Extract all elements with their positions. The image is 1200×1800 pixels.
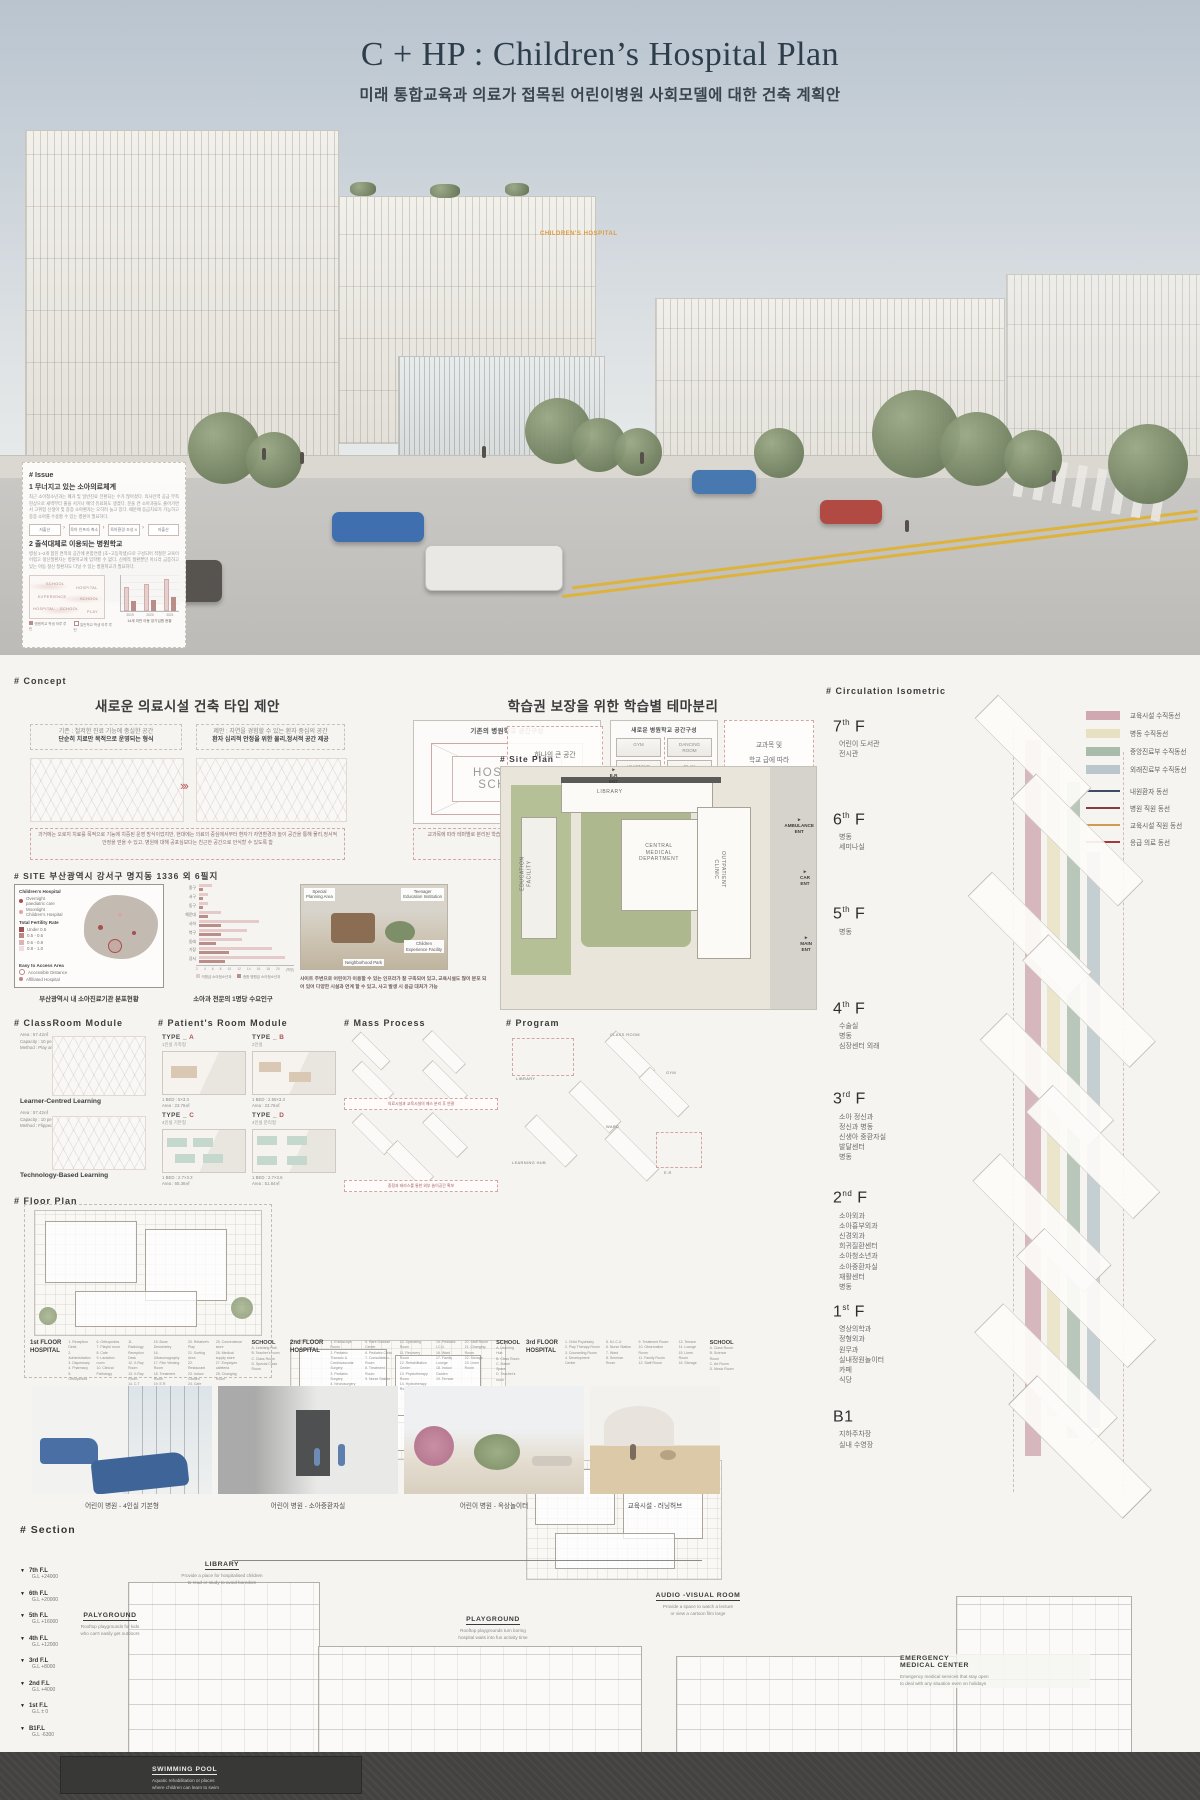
axis-tick: 8	[220, 967, 222, 972]
car-white-suv	[425, 545, 563, 591]
site-chart-panel: 중구서구동구해운대사하북구동래기장강서2468101214161820(백명) …	[172, 884, 294, 980]
site-caption: 사이트 주변으로 어린이가 이용할 수 있는 인프라가 잘 구축되어 있고, 교…	[300, 976, 490, 991]
callout-title: PLAYGROUND	[466, 1616, 520, 1625]
school-list: A. Learning Hub B. Class Room C. Maker S…	[496, 1346, 520, 1383]
callout-desc: Aquatic rehabilitation or places where c…	[152, 1778, 332, 1792]
type-drawing	[162, 1051, 246, 1095]
type-dims: 1 BED : 2.55×3.3 Area : 23.76㎡	[252, 1097, 336, 1109]
bar-category-label: 북구	[172, 930, 199, 936]
classroom-2-label: Technology-Based Learning	[20, 1172, 108, 1179]
callout-palyground: PALYGROUND Rooftop playgrounds for kids …	[30, 1604, 190, 1638]
callout-audio-visual: AUDIO -VISUAL ROOM Provide a space to wa…	[608, 1584, 788, 1618]
square-swatch	[19, 927, 24, 932]
photo-figure-1: 어린이 병원 - 4인실 기본형	[32, 1386, 212, 1510]
program-label: LIBRARY	[516, 1076, 535, 1081]
axis-tick: 18	[266, 967, 270, 972]
axis-tick: 2	[196, 967, 198, 972]
type-drawing	[162, 1129, 246, 1173]
axis-unit: (백명)	[286, 967, 294, 972]
plan-legend-col: 1. Endoscope Room 2. Pediatric Thoracic …	[330, 1340, 359, 1393]
plan-legend-col: 10. Operating Room 11. Recovery Room 12.…	[400, 1340, 430, 1393]
issue-chart-caption: 14세 미만 아동 장기입원 현황	[120, 619, 179, 624]
floor-number: 7th F	[833, 718, 951, 736]
long-stay-bar-chart: 201920202021	[120, 575, 179, 612]
flower-bush	[414, 1426, 454, 1466]
bar-category-label: 동구	[172, 903, 199, 909]
site-photo-label: Teenager Education Institution	[401, 888, 444, 901]
bar-category-label: 2020	[144, 613, 156, 617]
floorplan-1-drawing	[34, 1210, 262, 1336]
concept-old-isometric	[30, 758, 184, 822]
type-name: TYPE _ B	[252, 1034, 336, 1041]
bar-row: 사하	[172, 920, 294, 927]
er-entrance-label: E.R ENT	[609, 767, 618, 784]
bar-장기입원 아동	[124, 587, 129, 611]
floor-rooms: 어린이 도서관 전시관	[839, 740, 951, 760]
floor-number: 6th F	[833, 811, 951, 829]
callout-desc: Provide a place for hospitalised childre…	[132, 1573, 312, 1587]
issue-chart-figure: 201920202021 14세 미만 아동 장기입원 현황	[120, 575, 179, 633]
site-photo-label: Special Planning Area	[304, 888, 335, 901]
routine-diagram: SCHOOL HOSPITAL EXPERIENCE SCHOOL HOSPIT…	[29, 575, 105, 619]
mass-heading: # Mass Process	[344, 1018, 426, 1028]
bar-pair	[199, 902, 294, 909]
header: C + HP : Children’s Hospital Plan 미래 통합교…	[0, 36, 1200, 105]
legend-item: 의원급 소아청소년과	[196, 974, 231, 980]
type-name: TYPE _ A	[162, 1034, 246, 1041]
bar-pair	[199, 893, 294, 900]
patient-type-b: TYPE _ B 2인실 1 BED : 2.55×3.3 Area : 23.…	[252, 1034, 336, 1109]
photo-figure-3: 어린이 병원 - 옥상놀이터	[404, 1386, 584, 1510]
routine-word: EXPERIENCE	[38, 595, 66, 599]
bar-row: 서구	[172, 893, 294, 900]
legend-item: Accessible Distance	[19, 969, 67, 975]
floorplan-1-caption: 1st FLOOR HOSPITAL 1. Reception Desk 2. …	[30, 1340, 280, 1393]
plan-legend-col: 5. Rare Disease Center 6. Pediatric Clin…	[365, 1340, 394, 1393]
bar-종합 병원급 소아청소년과	[199, 924, 221, 927]
plan-landscape	[39, 1307, 57, 1325]
floor-entry: 6th F 병동 세미나실	[833, 811, 951, 854]
plan-school-legend: SCHOOL A. Learning Hub B. Class Room C. …	[496, 1340, 520, 1383]
plan-legend-cols: 1. Reception Desk 2. Administration 3. D…	[68, 1340, 244, 1393]
program-dashed-box	[512, 1038, 574, 1076]
floor-entry: 4th F 수술실 병동 심장센터 외래	[833, 1000, 951, 1053]
hospital-bed	[40, 1438, 98, 1464]
level-list: 7th F.L G.L +24000 6th F.L G.L +20000 5t…	[20, 1568, 58, 1748]
plan-legend-col: 15. Pediatric I.C.U 16. Ward 17. Family …	[436, 1340, 459, 1393]
callout-title: PALYGROUND	[83, 1612, 136, 1621]
concept-old-box: 기존 : 철저한 진료 기능에 충실한 공간 단순히 치료만 목적으로 운영되는…	[30, 724, 182, 750]
main-entrance-label: MAIN ENT	[800, 935, 812, 952]
floor-number: 5th F	[833, 905, 951, 923]
callout-title: SWIMMING POOL	[152, 1766, 217, 1775]
bar-종합 병원급 소아청소년과	[199, 897, 203, 900]
car-entrance-label: CAR ENT	[800, 869, 810, 886]
routine-word: SCHOOL	[80, 597, 98, 601]
routine-word: HOSPITAL	[33, 607, 55, 611]
mass-caption: 의료시설과 교육시설의 매스 분리 후 연결	[344, 1098, 498, 1110]
siteplan-canopy	[561, 777, 721, 783]
siteplan-road	[770, 767, 816, 1009]
type-dims: 1 BED : 2.7×3.6 Area : 51.84㎡	[252, 1175, 336, 1187]
floorplan-2-caption: 2nd FLOOR HOSPITAL 1. Endoscope Room 2. …	[290, 1340, 520, 1393]
site-plan-drawing: LIBRARY CENTRAL MEDICAL DEPARTMENT OUTPA…	[500, 766, 817, 1010]
bar-row: 중구	[172, 884, 294, 891]
bed-shape	[257, 1136, 277, 1145]
callout-title: LIBRARY	[205, 1561, 239, 1570]
plan-block	[45, 1221, 137, 1283]
doorway	[296, 1410, 330, 1476]
legend-swatch	[237, 974, 241, 978]
theme-room: GYM	[616, 738, 661, 757]
axis-tick: 6	[212, 967, 214, 972]
legend-item: Affiliated Hospital	[19, 977, 67, 982]
x-axis: 2468101214161820(백명)	[196, 965, 294, 972]
demand-chart-legend: 의원급 소아청소년과종합 병원급 소아청소년과	[196, 974, 294, 980]
bar-category-label: 해운대	[172, 912, 199, 918]
plan-block	[555, 1533, 675, 1569]
hospital-sign: CHILDREN'S HOSPITAL	[540, 231, 617, 237]
level-entry: 2nd F.L G.L +4000	[20, 1681, 58, 1693]
siteplan-heading: # Site Plan	[500, 754, 554, 764]
demand-bar-chart: 중구서구동구해운대사하북구동래기장강서2468101214161820(백명)	[172, 884, 294, 972]
bed-shape	[259, 1062, 281, 1072]
bar-의원급 소아청소년과	[199, 929, 247, 932]
plan-legend-col: 25. Convenience store 26. Medical supply…	[216, 1340, 245, 1393]
bar-pair	[199, 884, 294, 891]
site-photo-label: Children Experience Facility	[404, 940, 444, 953]
bar-pair	[199, 929, 294, 936]
bar-row: 동래	[172, 938, 294, 945]
type-name: TYPE _ D	[252, 1112, 336, 1119]
mass-caption: 중정과 테라스를 통한 외부 놀이공간 확보	[344, 1180, 498, 1192]
bar-pair	[199, 911, 294, 918]
callout-title: EMERGENCY MEDICAL CENTER	[900, 1655, 969, 1670]
bench	[532, 1456, 572, 1466]
hospital-dot	[132, 931, 136, 935]
level-entry: 7th F.L G.L +24000	[20, 1568, 58, 1580]
car-blue	[332, 512, 424, 542]
floor-entry: B1 지하주차장 실내 수영장	[833, 1408, 951, 1451]
bar-row: 기장	[172, 947, 294, 954]
type-drawing	[252, 1129, 336, 1173]
program-shape	[639, 1067, 690, 1118]
cycle-step: 저출산	[29, 524, 61, 536]
axis-tick: 14	[247, 967, 251, 972]
axis-tick: 4	[204, 967, 206, 972]
bar-row: 해운대	[172, 911, 294, 918]
child-figure	[630, 1444, 636, 1460]
plan-title: 3rd FLOOR HOSPITAL	[526, 1340, 558, 1355]
theme-room: DANCING ROOM	[667, 738, 712, 757]
mass-shape	[352, 1061, 394, 1103]
access-legend: Easy to Access Area Accessible Distance …	[19, 963, 67, 984]
type-drawing	[252, 1051, 336, 1095]
bar-category-label: 기장	[172, 947, 199, 953]
concept-right-title: 학습권 보장을 위한 학습별 테마분리	[413, 695, 813, 715]
siteplan-label-outpatient: OUTPATIENT CLINIC	[713, 851, 726, 888]
bean-bag	[660, 1450, 676, 1460]
ambulance-entrance-label: AMBULANCE ENT	[784, 817, 814, 834]
routine-legend: 병원학교 학생 하루 루틴 일반학교 학생 하루 루틴	[29, 621, 114, 633]
bar-의원급 소아청소년과	[199, 893, 208, 896]
bed-shape	[193, 1138, 213, 1147]
plan-legend-col: 6. Orthopedics 7. Playful room 8. Cafe 9…	[97, 1340, 123, 1393]
legend-swatch	[196, 974, 200, 978]
plan-legend-col: 20. Relative's Play 21. Sorting Area 22.…	[188, 1340, 210, 1393]
legend-item: 일반학교 학생 하루 루틴	[74, 621, 114, 633]
map-caption: 부산광역시 내 소아진료기관 분포현황	[14, 994, 164, 1003]
issue-panel: # Issue 1 무너지고 있는 소아의료체계 최근 소아청소년과는 폐과 및…	[22, 462, 186, 648]
building-main-tower	[25, 130, 339, 468]
plan-title: 2nd FLOOR HOSPITAL	[290, 1340, 323, 1355]
bar-의원급 소아청소년과	[199, 884, 212, 887]
photo-rooftop-playground	[404, 1386, 584, 1494]
photo-caption: 교육시설 - 러닝허브	[590, 1500, 720, 1510]
presentation-board: CHILDREN'S HOSPITAL C + HP : Children’s …	[0, 0, 1200, 1800]
dot-icon	[19, 899, 23, 903]
type-dims: 1 BED : 5×3.3 Area : 23.76㎡	[162, 1097, 246, 1109]
car-red	[820, 500, 882, 524]
photo-figure-2: 어린이 병원 - 소아중환자실	[218, 1386, 398, 1510]
siteplan-label-library: LIBRARY	[597, 789, 623, 796]
callout-library: LIBRARY Provide a place for hospitalised…	[132, 1553, 312, 1587]
pedestrian	[1052, 470, 1056, 482]
photo-patient-room	[32, 1386, 212, 1494]
floor-rooms: 지하주차장 실내 수영장	[839, 1430, 951, 1450]
curved-wall	[604, 1406, 674, 1446]
plan-legend-col: 20. Staff Room 21. Changing Room 22. Sto…	[465, 1340, 489, 1393]
concept-heading: # Concept	[14, 676, 67, 686]
tree	[1108, 424, 1188, 504]
bar-row: 북구	[172, 929, 294, 936]
plan-legend-col: 11. Radiology Reception Desk 12. X-Ray R…	[128, 1340, 148, 1393]
type-sub: 4인실 기본형	[162, 1120, 246, 1126]
bar-종합 병원급 소아청소년과	[199, 942, 216, 945]
mass-shape	[422, 1112, 468, 1158]
bar-종합 병원급 소아청소년과	[199, 888, 203, 891]
bar-category-label: 중구	[172, 885, 199, 891]
callout-desc: Provide a space to watch a lecture or vi…	[608, 1604, 788, 1618]
bar-의원급 소아청소년과	[199, 947, 272, 950]
program-dashed-box	[656, 1132, 702, 1168]
circulation-isometric-drawing	[955, 712, 1197, 1518]
site-marker	[108, 939, 122, 953]
bar-category-label: 강서	[172, 956, 199, 962]
cycle-step: 육아 인프라 축소	[69, 524, 101, 536]
cycle-step: 육아환경 조성 X	[108, 524, 140, 536]
routine-word: SCHOOL	[60, 607, 78, 611]
routine-word: SCHOOL	[46, 582, 64, 586]
photo-picu	[218, 1386, 398, 1494]
issue-2-title: 2 출석대체로 이용되는 병원학교	[29, 539, 179, 549]
type-dims: 1 BED : 2.7×3.3 Area : 65.36㎡	[162, 1175, 246, 1187]
axis-tick: 10	[228, 967, 232, 972]
playground-structure	[331, 913, 375, 943]
bed-shape	[167, 1138, 187, 1147]
bed-shape	[171, 1066, 197, 1078]
callout-desc: Rooftop playgrounds for kids who can't e…	[30, 1624, 190, 1638]
legend-title: Children's Hospital	[19, 889, 61, 894]
plan-legend-col: 1. Reception Desk 2. Administration 3. D…	[68, 1340, 90, 1393]
type-name: TYPE _ C	[162, 1112, 246, 1119]
classroom-1-drawing	[52, 1036, 146, 1096]
square-swatch	[19, 946, 24, 951]
hospital-dot	[118, 913, 122, 917]
program-label: CLASS ROOM	[610, 1032, 640, 1037]
issue-figures: SCHOOL HOSPITAL EXPERIENCE SCHOOL HOSPIT…	[29, 575, 179, 633]
bar-category-label: 사하	[172, 921, 199, 927]
callout-swimming-pool: SWIMMING POOL Aquatic rehabilitation or …	[152, 1758, 332, 1792]
floor-number: 1st F	[833, 1303, 951, 1321]
concept-new-box: 제안 : 자연을 경험할 수 있는 환자 중심의 공간 환자 심리적 안정을 위…	[196, 724, 345, 750]
bar-pair	[199, 938, 294, 945]
bar-group: 2020	[144, 575, 156, 611]
bar-category-label: 서구	[172, 894, 199, 900]
concept-left-title: 새로운 의료시설 건축 타입 제안	[30, 695, 345, 715]
photo-caption: 어린이 병원 - 4인실 기본형	[32, 1500, 212, 1510]
level-entry: B1F.L G.L -6300	[20, 1726, 58, 1738]
floor-rooms: 소아 정신과 정신과 병동 신생아 중환자실 발달센터 병동	[839, 1113, 951, 1164]
circle-icon	[19, 969, 25, 975]
page-subtitle: 미래 통합교육과 의료가 접목된 어린이병원 사회모델에 대한 건축 계획안	[0, 83, 1200, 105]
page-title: C + HP : Children’s Hospital Plan	[0, 36, 1200, 74]
school-list: A. Class Room B. Science Room C. Art Roo…	[710, 1346, 736, 1372]
program-label: WARD	[606, 1124, 619, 1129]
pedestrian	[482, 446, 486, 458]
bed-shape	[203, 1154, 223, 1163]
bar-종합 병원급 소아청소년과	[199, 960, 225, 963]
floor-rooms: 소아외과 소아흉부외과 신경외과 희귀질환센터 소아청소년과 소아중환자실 재활…	[839, 1212, 951, 1293]
bed-shape	[175, 1154, 195, 1163]
callout-title: AUDIO -VISUAL ROOM	[656, 1592, 741, 1601]
pedestrian	[262, 448, 266, 460]
floor-entry: 2nd F 소아외과 소아흉부외과 신경외과 희귀질환센터 소아청소년과 소아중…	[833, 1189, 951, 1292]
bar-pair	[199, 920, 294, 927]
theme-note-line: 교과목 및	[725, 739, 813, 749]
legend-swatch-outline	[74, 621, 79, 626]
pedestrian	[300, 452, 304, 464]
floorplan-3-caption: 3rd FLOOR HOSPITAL 1. Child Psychiatry 2…	[526, 1340, 736, 1372]
car-blue-small	[692, 470, 756, 494]
plan-landscape	[231, 1297, 253, 1319]
tree	[940, 412, 1014, 486]
floor-entry: 7th F 어린이 도서관 전시관	[833, 718, 951, 761]
theme-note-line: 학교 급에 따라	[725, 754, 813, 764]
siteplan-label-central: CENTRAL MEDICAL DEPARTMENT	[639, 843, 679, 863]
mass-process-drawing: 의료시설과 교육시설의 매스 분리 후 연결 중정과 테라스를 통한 외부 놀이…	[344, 1032, 496, 1192]
bar-병원학교 이용 아동	[131, 601, 136, 611]
tree	[246, 432, 302, 488]
bush	[474, 1434, 520, 1470]
program-heading: # Program	[506, 1018, 560, 1028]
tree	[614, 428, 662, 476]
plan-school-legend: SCHOOL A. Learning Hub B. Teacher's room…	[251, 1340, 280, 1372]
bar-병원학교 이용 아동	[171, 597, 176, 610]
level-elevation: G.L +24000	[32, 1574, 58, 1580]
routine-figure: SCHOOL HOSPITAL EXPERIENCE SCHOOL HOSPIT…	[29, 575, 114, 633]
plan-legend-col: 1. Child Psychiatry 2. Play Therapy Room…	[565, 1340, 600, 1366]
type-sub: 4인실 분리형	[252, 1120, 336, 1126]
plan-legend-cols: 1. Child Psychiatry 2. Play Therapy Room…	[565, 1340, 703, 1366]
bar-의원급 소아청소년과	[199, 938, 242, 941]
classroom-2-drawing	[52, 1116, 146, 1170]
legend-swatch-filled	[29, 621, 33, 625]
pedestrian	[640, 452, 644, 464]
iso-guide-line	[1013, 732, 1014, 1492]
bed-shape	[287, 1156, 307, 1165]
floor-rooms: 병동	[839, 928, 951, 938]
square-swatch	[19, 933, 24, 938]
site-photo-label: Neighborhood Park	[343, 959, 384, 966]
routine-word: PLAY	[87, 610, 98, 614]
photo-caption: 어린이 병원 - 옥상놀이터	[404, 1500, 584, 1510]
level-entry: 1st F.L G.L ± 0	[20, 1703, 58, 1715]
concept-left-caption: 과거에는 오로지 치료를 목적으로 기능에 치중된 운영 방식이었지만, 현대에…	[30, 828, 345, 860]
bar-row: 강서	[172, 956, 294, 963]
photo-figure-4: 교육시설 - 러닝허브	[590, 1386, 720, 1510]
program-label: LEARNING HUB	[512, 1160, 546, 1165]
bar-의원급 소아청소년과	[199, 956, 285, 959]
level-elevation: G.L +20000	[32, 1597, 58, 1603]
section-drawing-left-low	[318, 1646, 642, 1756]
site-photo: Special Planning Area Teenager Education…	[300, 884, 448, 970]
issue-2-body: 병실 1~2개 합친 면적의 공간에 혼합연령 (초~고등학생)으로 구성되어 …	[29, 551, 179, 571]
bed-shape	[257, 1156, 277, 1165]
bar-pair	[199, 956, 294, 963]
bar-종합 병원급 소아청소년과	[199, 951, 229, 954]
tree	[754, 428, 804, 478]
level-elevation: G.L +12000	[32, 1642, 58, 1648]
issue-1-body: 최근 소아청소년과는 폐과 및 일반진료 전환되는 수가 많아졌다. 의사인력 …	[29, 494, 179, 521]
floor-rooms: 영상의학과 정형외과 원무과 실내정원놀이터 카페 식당	[839, 1325, 951, 1386]
site-chart-caption: 소아과 전문의 1명당 수요인구	[172, 994, 294, 1003]
concept-new-isometric	[196, 758, 347, 822]
legend-title: Easy to Access Area	[19, 963, 64, 968]
siteplan-library-block	[561, 781, 713, 813]
level-elevation: G.L +4000	[32, 1687, 58, 1693]
circulation-heading: # Circulation Isometric	[826, 686, 946, 696]
classroom-1-label: Learner-Centred Learning	[20, 1098, 101, 1105]
callout-playground: PLAYGROUND Rooftop playgrounds turn bori…	[408, 1608, 578, 1642]
floor-rooms: 수술실 병동 심장센터 외래	[839, 1022, 951, 1052]
bar-의원급 소아청소년과	[199, 911, 221, 914]
type-sub: 1인실 가족형	[162, 1042, 246, 1048]
rooftop-garden	[350, 182, 376, 196]
bar-병원학교 이용 아동	[151, 600, 156, 611]
level-entry: 3rd F.L G.L +8000	[20, 1658, 58, 1670]
school-list: A. Learning Hub B. Teacher's room C. Cla…	[251, 1346, 280, 1372]
callout-emergency: EMERGENCY MEDICAL CENTER Emergency medic…	[900, 1654, 1090, 1688]
floor-number: 4th F	[833, 1000, 951, 1018]
floor-entry: 3rd F 소아 정신과 정신과 병동 신생아 중환자실 발달센터 병동	[833, 1090, 951, 1163]
plan-school-legend: SCHOOL A. Class Room B. Science Room C. …	[710, 1340, 736, 1372]
issue-cycle-diagram: 저출산육아 인프라 축소육아환경 조성 X저출산	[29, 524, 179, 536]
axis-tick: 12	[237, 967, 241, 972]
program-label: E.R	[664, 1170, 672, 1175]
bar-category-label: 동래	[172, 939, 199, 945]
program-shape	[604, 1126, 659, 1181]
floor-number: 2nd F	[833, 1189, 951, 1207]
legend-item: 종합 병원급 소아청소년과	[237, 974, 280, 980]
bar-pair	[199, 947, 294, 954]
bar-종합 병원급 소아청소년과	[199, 933, 221, 936]
floor-entry: 5th F 병동	[833, 905, 951, 937]
section-heading: # Section	[20, 1524, 76, 1536]
photo-learning-hub	[590, 1386, 720, 1494]
plan-block	[75, 1291, 197, 1327]
bar-장기입원 아동	[144, 584, 149, 610]
